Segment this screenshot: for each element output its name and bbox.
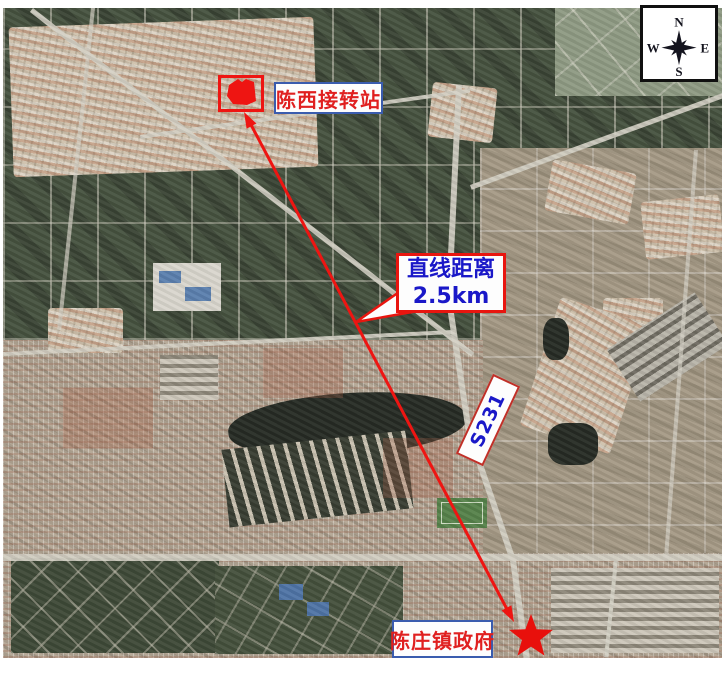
- site-label-text: 陈西接转站: [276, 84, 381, 113]
- compass-rose-graphic: N S W E: [643, 8, 715, 79]
- distance-arrow-line: [249, 121, 509, 613]
- compass-south-label: S: [675, 65, 682, 79]
- distance-arrowhead-south: [502, 605, 514, 622]
- site-label: 陈西接转站: [274, 82, 383, 114]
- compass-west-label: W: [647, 41, 660, 55]
- distance-callout: 直线距离 2.5km: [396, 253, 506, 313]
- compass-east-label: E: [701, 41, 710, 55]
- compass-north-label: N: [674, 15, 684, 29]
- distance-callout-line1: 直线距离: [407, 256, 495, 283]
- government-label: 陈庄镇政府: [392, 620, 493, 658]
- compass-rose: N S W E: [640, 5, 718, 82]
- compass-star-main-points: [661, 30, 696, 65]
- site-boundary-rectangle: [218, 75, 264, 112]
- distance-arrowhead-north: [244, 112, 256, 129]
- government-star-icon: [509, 614, 553, 656]
- government-label-text: 陈庄镇政府: [390, 625, 495, 654]
- distance-callout-line2: 2.5km: [413, 283, 490, 310]
